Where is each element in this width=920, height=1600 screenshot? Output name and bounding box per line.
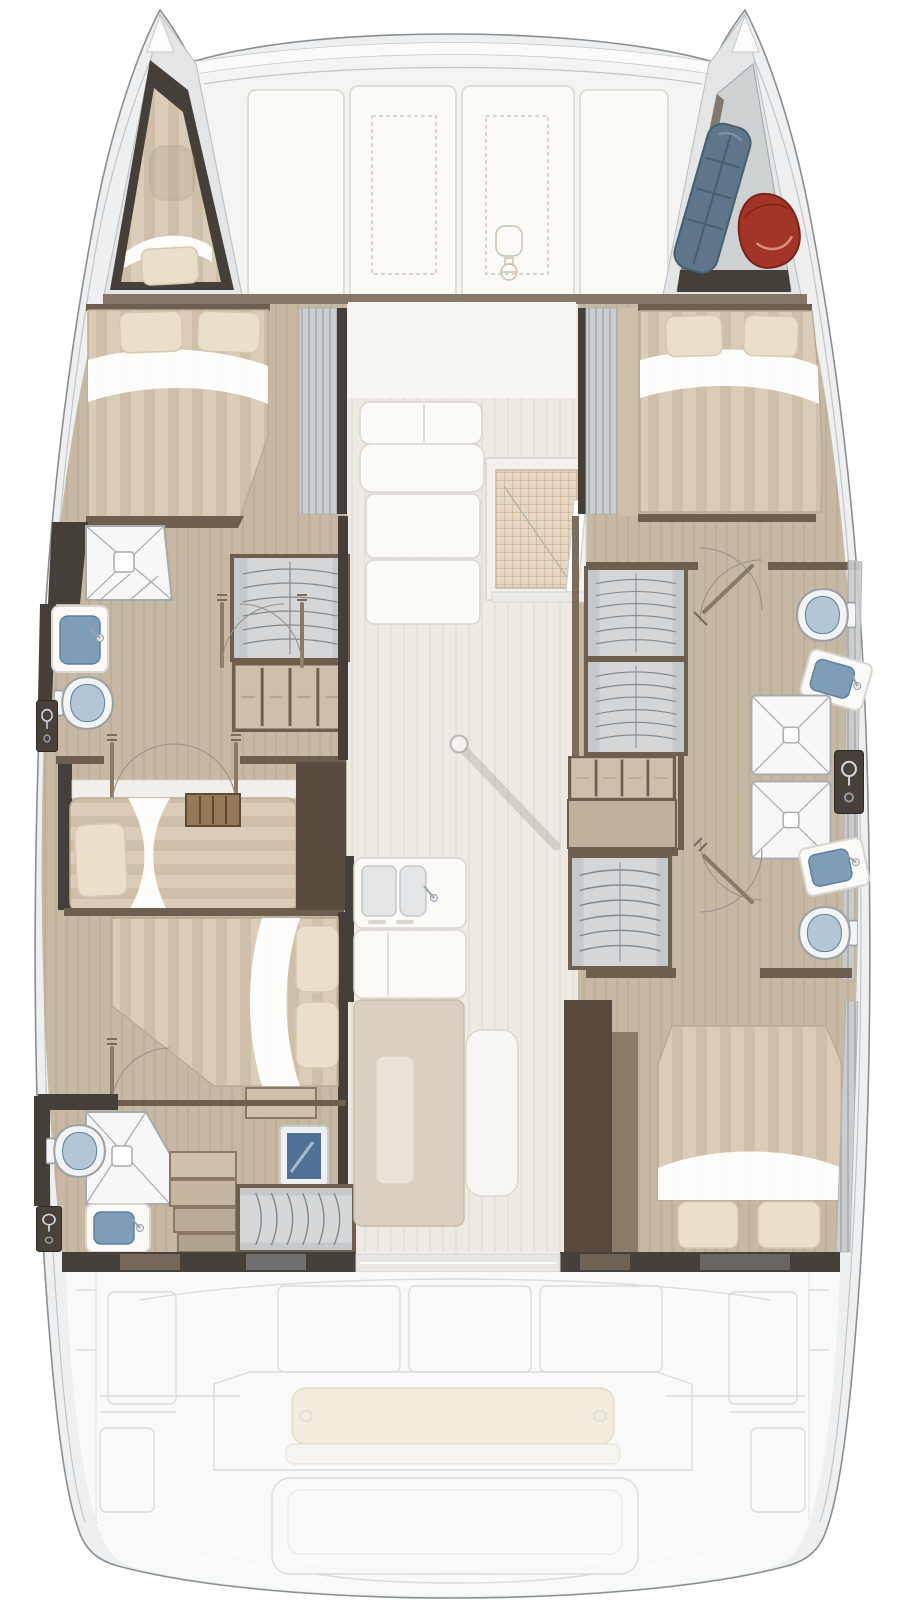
bulkhead <box>760 968 852 978</box>
foredeck-cushion <box>462 86 574 302</box>
tv-icon <box>280 1126 328 1186</box>
aft-wall-unit <box>700 1254 790 1270</box>
pillow-icon <box>665 315 722 357</box>
pillow-icon <box>74 823 128 898</box>
shelf-band <box>299 308 337 514</box>
forward-console <box>348 302 576 398</box>
aft-cockpit <box>66 1272 840 1596</box>
wardrobe-icon <box>586 660 686 754</box>
starboard-forward-cabin <box>578 304 822 522</box>
cockpit-bench-icon <box>292 1388 614 1444</box>
pillow-icon <box>119 311 182 353</box>
foredeck-lounge <box>191 43 714 303</box>
shower-control-icon <box>835 751 864 814</box>
pillow-icon <box>141 247 199 286</box>
sofa-icon <box>360 402 484 624</box>
shower-control-icon <box>36 700 57 751</box>
locker-wall <box>677 270 791 292</box>
saloon-wall <box>338 516 348 760</box>
wardrobe-icon <box>570 856 670 968</box>
galley-counter <box>354 930 466 998</box>
pillow-icon <box>296 926 338 992</box>
wall <box>118 1100 346 1106</box>
wardrobe-icon <box>586 568 686 658</box>
washbasin-icon <box>86 1204 150 1252</box>
pillow-icon <box>758 1202 820 1248</box>
shower-tray-icon <box>751 695 830 774</box>
wardrobe-icon <box>238 1186 354 1252</box>
pillow-icon <box>197 311 260 353</box>
aft-bulkhead <box>62 1252 840 1272</box>
washbasin-icon <box>52 606 108 672</box>
stairwell-side <box>612 1032 638 1252</box>
shelf <box>72 780 296 798</box>
wall <box>768 562 860 570</box>
wardrobe-icon <box>232 556 348 660</box>
headboard <box>638 304 812 311</box>
drawer-unit-icon <box>570 757 675 799</box>
table-leaf <box>376 1056 414 1184</box>
foredeck-cushion <box>580 90 668 300</box>
aft-wall-unit <box>580 1254 630 1270</box>
stairs-icon <box>170 1152 236 1252</box>
floor-step <box>618 308 638 516</box>
bulkhead <box>586 968 676 978</box>
pillow-icon <box>743 315 798 357</box>
forepeak-hatch-icon <box>150 146 194 200</box>
catamaran-floor-plan-page <box>0 0 920 1600</box>
pillow-icon <box>678 1202 738 1248</box>
wall <box>56 756 104 764</box>
shower-tray-icon <box>86 526 172 600</box>
foredeck-cushion <box>350 86 456 302</box>
shower-control-icon <box>37 1206 62 1251</box>
pillow-icon <box>296 1002 338 1068</box>
foredeck-cushion <box>248 90 344 300</box>
aft-wall-unit <box>246 1254 306 1270</box>
cabin-wall <box>296 762 346 910</box>
galley-sink-icon <box>354 858 466 928</box>
sliding-door <box>356 1254 560 1272</box>
cabin-wall <box>337 308 347 514</box>
bench-front <box>286 1444 620 1464</box>
shelf-band <box>586 308 618 514</box>
locker <box>568 800 676 848</box>
starboard-stairwell <box>564 1000 612 1252</box>
port-forward-cabin <box>86 304 347 528</box>
ladder-icon <box>186 794 240 826</box>
bench-icon <box>466 1030 518 1196</box>
footboard <box>638 514 816 522</box>
aft-wall <box>62 1252 356 1272</box>
cabin-wall <box>578 308 586 514</box>
aft-wall-unit <box>120 1254 180 1270</box>
drawer-unit-icon <box>234 664 347 731</box>
catamaran-floor-plan <box>0 0 920 1600</box>
